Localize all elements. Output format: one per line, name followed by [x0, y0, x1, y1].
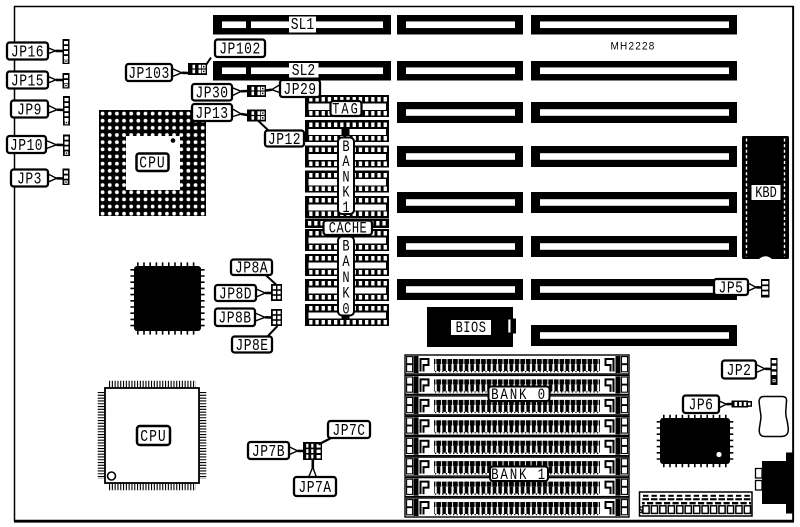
svg-text:JP102: JP102	[219, 41, 260, 59]
svg-text:JP3: JP3	[17, 171, 42, 189]
svg-text:CPU: CPU	[140, 429, 166, 447]
svg-text:K: K	[342, 286, 350, 303]
svg-text:JP8E: JP8E	[235, 338, 268, 356]
svg-text:JP8D: JP8D	[219, 286, 252, 304]
svg-text:JP5: JP5	[719, 280, 744, 298]
svg-text:JP103: JP103	[128, 66, 169, 84]
svg-text:JP16: JP16	[11, 44, 44, 62]
svg-text:JP7A: JP7A	[298, 480, 331, 498]
svg-text:1: 1	[342, 201, 349, 218]
svg-text:JP8B: JP8B	[218, 310, 251, 328]
svg-text:JP12: JP12	[268, 132, 301, 150]
svg-text:JP15: JP15	[11, 73, 44, 91]
svg-text:JP10: JP10	[10, 138, 43, 156]
svg-text:TAG: TAG	[332, 102, 360, 119]
svg-text:N: N	[342, 271, 349, 288]
svg-text:CPU: CPU	[139, 155, 165, 173]
svg-text:JP7B: JP7B	[252, 444, 285, 462]
svg-text:JP2: JP2	[727, 363, 752, 381]
svg-text:BANK 1: BANK 1	[491, 467, 547, 485]
svg-text:A: A	[342, 255, 350, 272]
svg-text:0: 0	[342, 302, 349, 319]
svg-text:JP6: JP6	[689, 397, 714, 415]
svg-text:MH2228: MH2228	[611, 40, 656, 53]
svg-text:JP9: JP9	[17, 102, 42, 120]
svg-text:JP8A: JP8A	[235, 260, 268, 278]
svg-text:JP13: JP13	[195, 106, 228, 124]
svg-text:SL2: SL2	[292, 63, 315, 81]
svg-text:BANK 0: BANK 0	[491, 387, 547, 405]
svg-text:JP29: JP29	[283, 82, 316, 100]
svg-text:JP7C: JP7C	[332, 423, 365, 441]
svg-text:BIOS: BIOS	[456, 321, 487, 338]
svg-text:B: B	[342, 239, 349, 256]
svg-text:SL1: SL1	[291, 17, 314, 35]
svg-text:KBD: KBD	[755, 186, 777, 203]
svg-text:JP30: JP30	[195, 85, 228, 103]
